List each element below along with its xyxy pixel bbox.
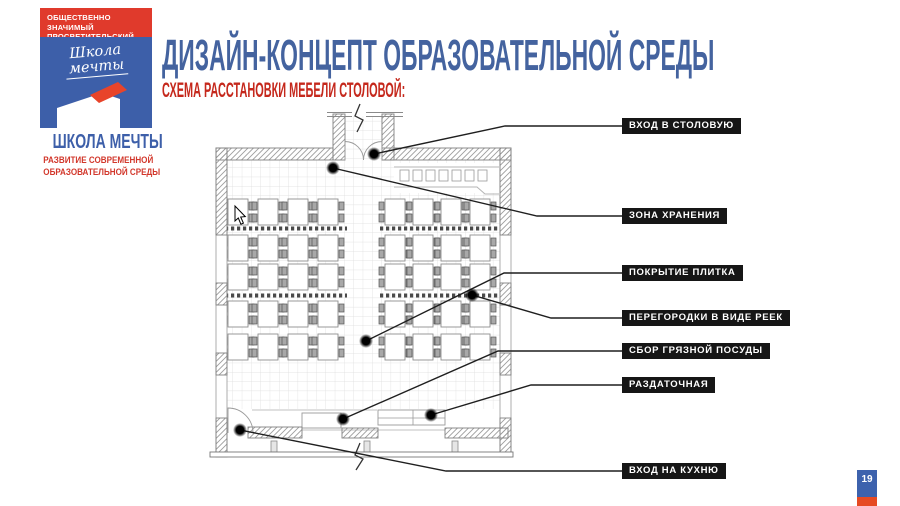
callout-dirty-dishes: СБОР ГРЯЗНОЙ ПОСУДЫ	[622, 343, 770, 359]
callout-tile-flooring: ПОКРЫТИЕ ПЛИТКА	[622, 265, 743, 281]
logo-mark: Школа мечты	[40, 37, 152, 128]
callout-serving-area: РАЗДАТОЧНАЯ	[622, 377, 715, 393]
callout-kitchen-entrance: ВХОД НА КУХНЮ	[622, 463, 726, 479]
logo-banner-line1: ОБЩЕСТВЕННО ЗНАЧИМЫЙ	[47, 13, 152, 32]
logo-banner: ОБЩЕСТВЕННО ЗНАЧИМЫЙ ПРОСВЕТИТЕЛЬСКИЙ ПР…	[40, 8, 152, 37]
callout-dining-entrance: ВХОД В СТОЛОВУЮ	[622, 118, 741, 134]
page-number-badge: 19	[857, 470, 877, 506]
presentation-slide: { "header": { "title": "ДИЗАЙН-КОНЦЕПТ О…	[0, 0, 900, 506]
school-building-icon	[40, 37, 152, 128]
page-badge-red-strip	[857, 497, 877, 506]
logo-tagline: РАЗВИТИЕ СОВРЕМЕННОЙ ОБРАЗОВАТЕЛЬНОЙ СРЕ…	[43, 155, 148, 179]
logo-name: ШКОЛА МЕЧТЫ	[53, 131, 140, 154]
callout-storage-zone: ЗОНА ХРАНЕНИЯ	[622, 208, 727, 224]
dining-hall-floor-plan	[200, 100, 900, 506]
page-number: 19	[857, 474, 877, 485]
callout-slat-partitions: ПЕРЕГОРОДКИ В ВИДЕ РЕЕК	[622, 310, 790, 326]
page-title: ДИЗАЙН-КОНЦЕПТ ОБРАЗОВАТЕЛЬНОЙ СРЕДЫ	[162, 31, 714, 81]
